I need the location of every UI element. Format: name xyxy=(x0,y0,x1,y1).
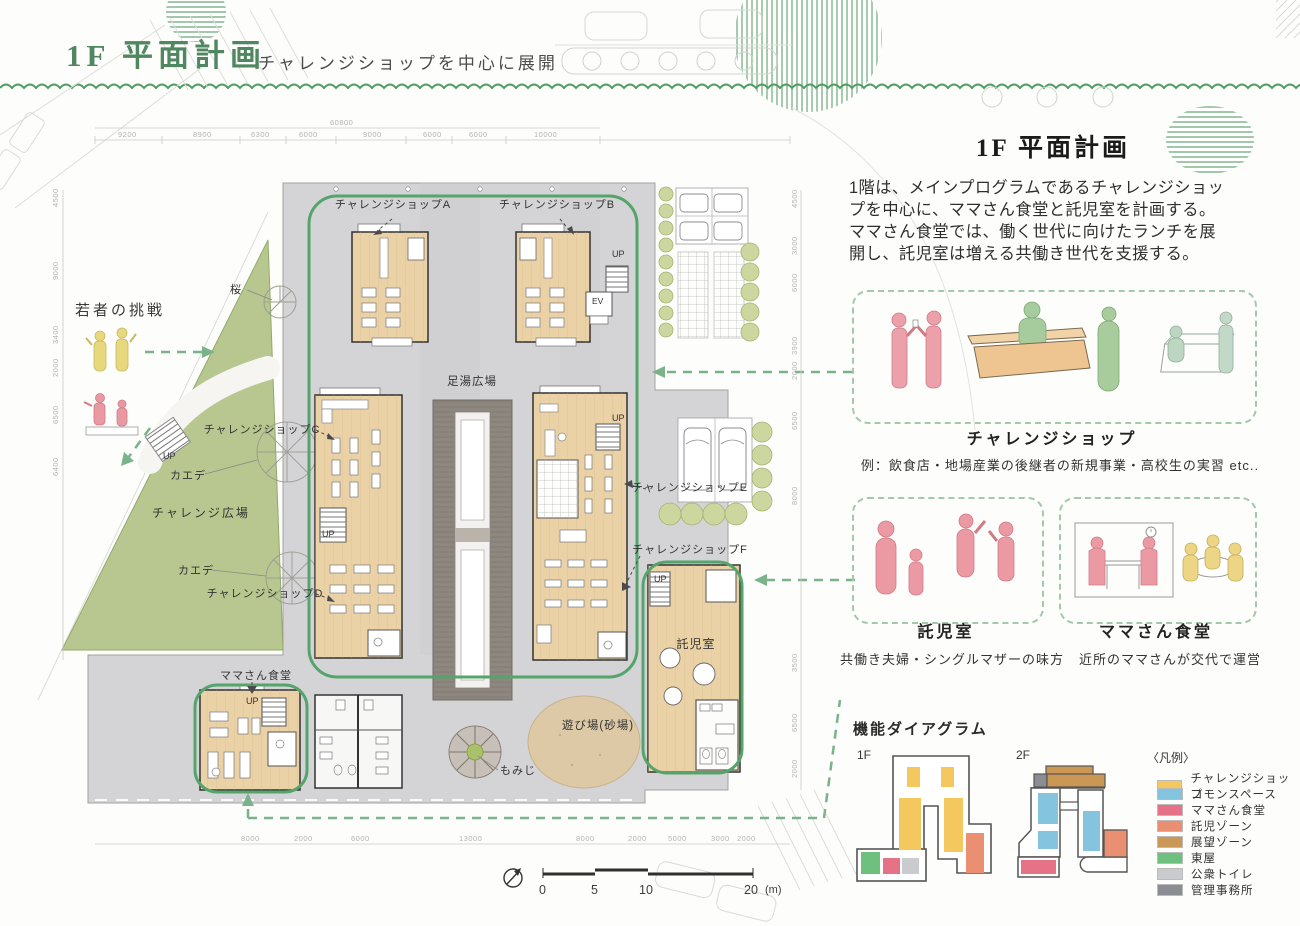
building-shop-cd xyxy=(315,388,402,658)
nursery-caption: 託児室 xyxy=(917,625,974,641)
svg-text:2000: 2000 xyxy=(737,834,756,843)
shop-a-label: チャレンジショップA xyxy=(335,200,451,211)
svg-text:8900: 8900 xyxy=(193,130,212,139)
legend-label: 管理事務所 xyxy=(1191,882,1254,898)
svg-text:8000: 8000 xyxy=(576,834,595,843)
svg-text:2000: 2000 xyxy=(51,358,60,377)
ashiyu-deck xyxy=(433,400,512,700)
nursery-card xyxy=(852,497,1044,624)
legend-swatch xyxy=(1157,868,1183,880)
svg-text:6500: 6500 xyxy=(790,411,799,430)
up-label-lawn: UP xyxy=(163,452,176,461)
up-label-cd: UP xyxy=(322,530,335,539)
legend-swatch xyxy=(1157,820,1183,832)
svg-text:2000: 2000 xyxy=(790,759,799,778)
svg-text:6000: 6000 xyxy=(469,130,488,139)
overview-line: 1階は、メインプログラムであるチャレンジショッ xyxy=(849,177,1279,199)
kaede-upper-label: カエデ xyxy=(170,471,206,482)
legend-item: 管理事務所 xyxy=(1157,882,1254,898)
svg-text:6400: 6400 xyxy=(51,457,60,476)
ev-label: EV xyxy=(592,297,603,306)
legend-item: 公衆トイレ xyxy=(1157,866,1254,882)
svg-text:5000: 5000 xyxy=(668,834,687,843)
challenge-shop-sketch xyxy=(854,292,1255,422)
legend-title: 〈凡例〉 xyxy=(1147,752,1195,764)
scale-0: 0 xyxy=(539,884,546,897)
svg-text:60800: 60800 xyxy=(330,118,353,127)
challenge-shop-note: 例：飲食店・地場産業の後継者の新規事業・高校生の実習 etc.. xyxy=(861,459,1259,472)
svg-text:8000: 8000 xyxy=(241,834,260,843)
legend-item: コモンスペース xyxy=(1157,786,1277,802)
shop-d-label: チャレンジショップD xyxy=(207,589,324,600)
legend-label: 託児ゾーン xyxy=(1191,818,1253,834)
presentation-board: 60800 9200 8900 6300 6000 9000 6000 6000… xyxy=(0,0,1300,926)
floor2-label: 2F xyxy=(1016,749,1030,761)
svg-text:3000: 3000 xyxy=(711,834,730,843)
legend-item: 東屋 xyxy=(1157,850,1216,866)
nursery-plan-label: 託児室 xyxy=(676,638,715,650)
sakura-label: 桜 xyxy=(230,285,242,296)
legend-swatch xyxy=(1157,884,1183,896)
legend-label: 東屋 xyxy=(1191,850,1216,866)
mama-dining-caption: ママさん食堂 xyxy=(1099,625,1213,641)
svg-text:9200: 9200 xyxy=(118,130,137,139)
nursery-sketch xyxy=(854,499,1042,622)
svg-text:10000: 10000 xyxy=(534,130,557,139)
svg-text:6000: 6000 xyxy=(351,834,370,843)
youth-figures-yellow xyxy=(86,328,136,371)
page-title: 1F 平面計画 xyxy=(66,40,266,71)
overview-line: 開し、託児室は増える共働き世代を支援する。 xyxy=(849,243,1279,265)
legend-swatch xyxy=(1157,836,1183,848)
nursery-note: 共働き夫婦・シングルマザーの味方 xyxy=(840,653,1064,666)
youth-challenge-label: 若者の挑戦 xyxy=(75,303,165,318)
legend-label: コモンスペース xyxy=(1191,786,1277,802)
shop-b-label: チャレンジショップB xyxy=(499,200,615,211)
up-label-nursery: UP xyxy=(654,575,667,584)
momiji-label: もみじ xyxy=(500,766,536,777)
svg-text:6000: 6000 xyxy=(299,130,318,139)
sand-playground xyxy=(528,696,640,788)
mama-dining-note: 近所のママさんが交代で運営 xyxy=(1079,653,1261,666)
svg-text:6000: 6000 xyxy=(423,130,442,139)
page-subtitle: チャレンジショップを中心に展開 xyxy=(258,55,558,72)
building-public-toilet xyxy=(315,695,402,788)
scale-20: 20 xyxy=(744,884,758,897)
legend-label: ママさん食堂 xyxy=(1191,802,1266,818)
parking-area xyxy=(676,188,752,502)
function-diagram-2f xyxy=(1018,766,1127,877)
svg-text:13000: 13000 xyxy=(459,834,482,843)
shop-f-label: チャレンジショップF xyxy=(632,545,748,556)
scale-10: 10 xyxy=(639,884,653,897)
legend-item: 展望ゾーン xyxy=(1157,834,1253,850)
legend-swatch xyxy=(1157,788,1183,800)
svg-text:6300: 6300 xyxy=(251,130,270,139)
legend-swatch xyxy=(1157,852,1183,864)
shop-e-label: チャレンジショップE xyxy=(632,483,748,494)
svg-text:6500: 6500 xyxy=(790,713,799,732)
up-label-ef: UP xyxy=(612,414,625,423)
youth-figures-pink xyxy=(84,394,138,436)
ashiyu-plaza-label: 足湯広場 xyxy=(447,377,497,389)
momiji-tree xyxy=(449,726,501,778)
challenge-shop-caption: チャレンジショップ xyxy=(967,432,1138,448)
svg-text:3900: 3900 xyxy=(790,336,799,355)
svg-text:3400: 3400 xyxy=(51,325,60,344)
floor1-label: 1F xyxy=(857,749,871,761)
svg-text:2000: 2000 xyxy=(790,361,799,380)
legend-label: 展望ゾーン xyxy=(1191,834,1253,850)
building-shop-ef xyxy=(533,386,627,660)
scale-bar xyxy=(543,868,753,878)
svg-text:9000: 9000 xyxy=(363,130,382,139)
scale-unit: (m) xyxy=(765,885,782,896)
mama-dining-card xyxy=(1059,497,1257,624)
up-label-mama: UP xyxy=(246,697,259,706)
legend-swatch xyxy=(1157,804,1183,816)
svg-text:6500: 6500 xyxy=(51,405,60,424)
svg-text:2000: 2000 xyxy=(294,834,313,843)
playground-label: 遊び場(砂場) xyxy=(562,721,634,733)
scale-5: 5 xyxy=(591,884,598,897)
overview-title: 1F 平面計画 xyxy=(976,136,1130,161)
svg-text:8000: 8000 xyxy=(790,486,799,505)
up-label-b: UP xyxy=(612,250,625,259)
legend-label: 公衆トイレ xyxy=(1191,866,1254,882)
overview-line: プを中心に、ママさん食堂と託児室を計画する。 xyxy=(849,199,1279,221)
legend-item: 託児ゾーン xyxy=(1157,818,1253,834)
function-diagram-1f xyxy=(857,756,991,881)
svg-text:3500: 3500 xyxy=(790,653,799,672)
svg-text:4500: 4500 xyxy=(51,188,60,207)
svg-text:9000: 9000 xyxy=(51,261,60,280)
building-nursery xyxy=(648,565,740,772)
legend-item: ママさん食堂 xyxy=(1157,802,1266,818)
svg-text:2000: 2000 xyxy=(628,834,647,843)
building-shop-a xyxy=(352,224,428,346)
svg-text:3000: 3000 xyxy=(790,236,799,255)
shop-c-label: チャレンジショップC xyxy=(204,425,321,436)
mama-dining-sketch xyxy=(1061,499,1255,622)
svg-text:4500: 4500 xyxy=(790,189,799,208)
mama-dining-plan-label: ママさん食堂 xyxy=(220,671,292,682)
building-shop-b xyxy=(516,224,590,346)
kaede-lower-label: カエデ xyxy=(178,566,214,577)
challenge-plaza-label: チャレンジ広場 xyxy=(152,507,250,519)
function-diagram-title: 機能ダイアグラム xyxy=(853,722,988,737)
challenge-shop-card xyxy=(852,290,1257,424)
svg-text:6000: 6000 xyxy=(790,273,799,292)
overview-paragraph: 1階は、メインプログラムであるチャレンジショッ プを中心に、ママさん食堂と託児室… xyxy=(849,177,1279,265)
overview-line: ママさん食堂では、働く世代に向けたランチを展 xyxy=(849,221,1279,243)
